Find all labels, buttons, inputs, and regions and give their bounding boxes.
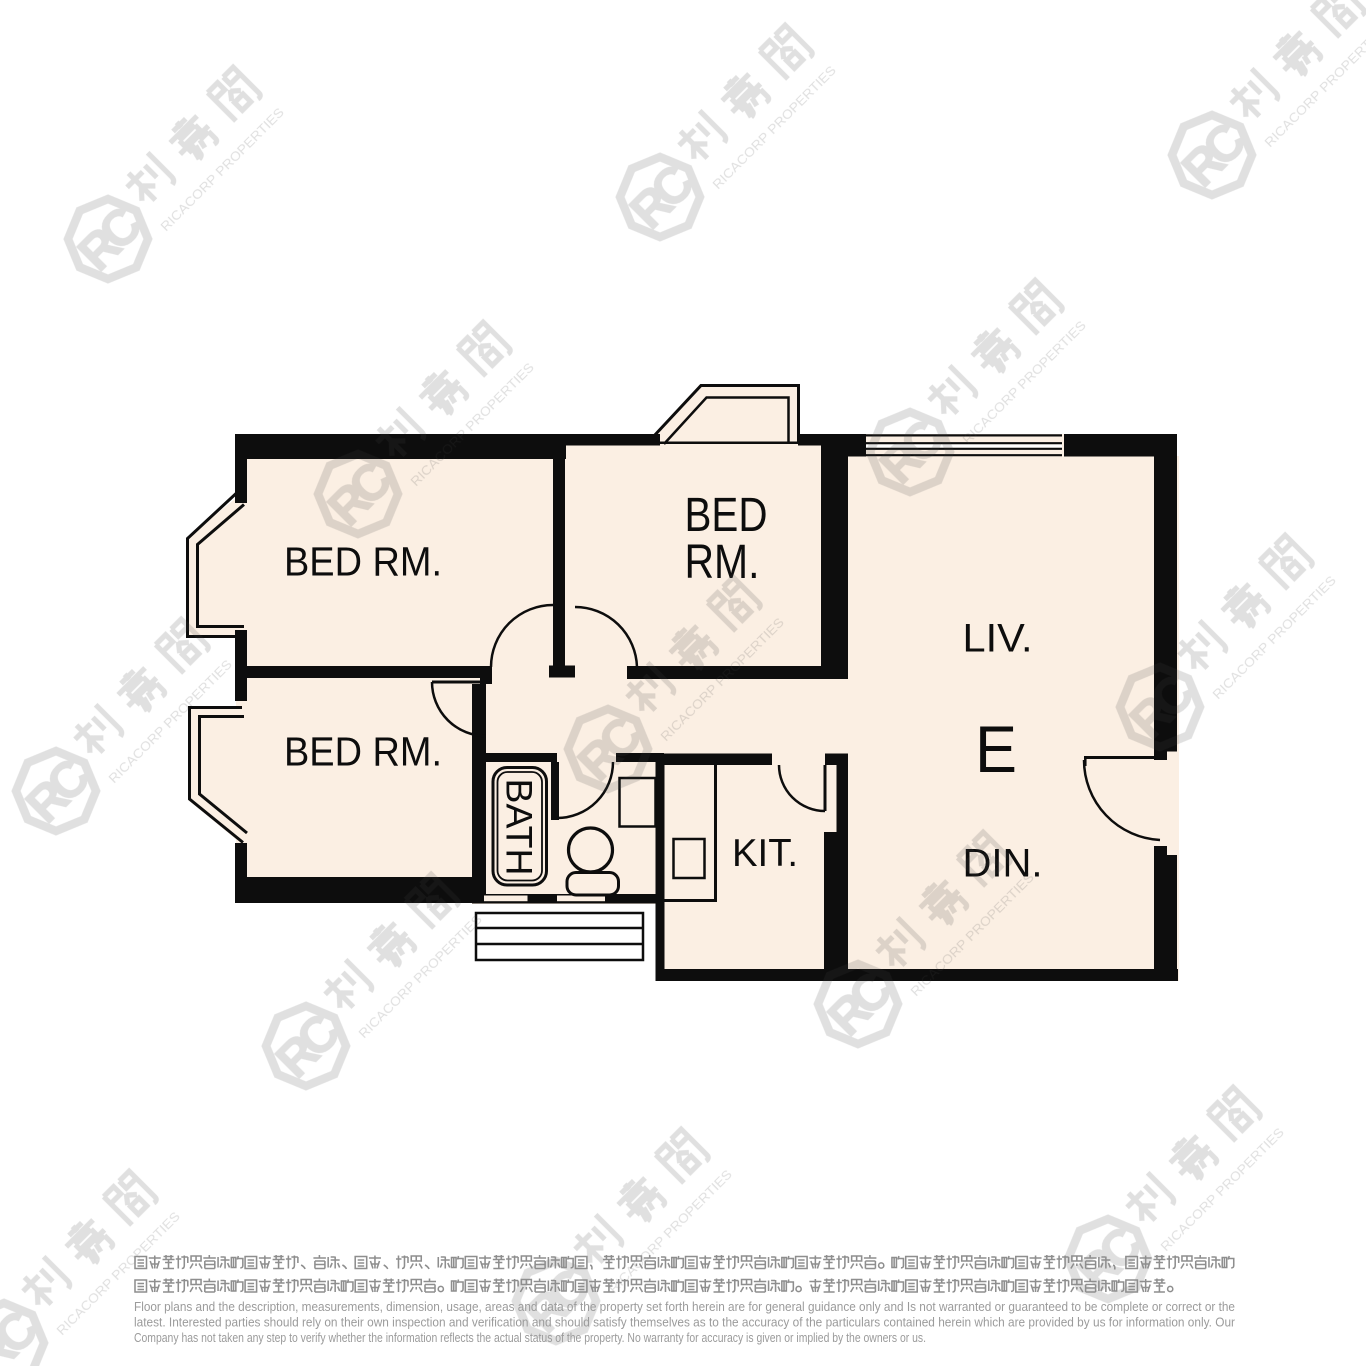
svg-text:latest. Interested parties sho: latest. Interested parties should rely o… (134, 1316, 1235, 1330)
svg-text:E: E (975, 712, 1017, 786)
svg-text:KIT.: KIT. (732, 832, 798, 875)
svg-text:Company has not taken any step: Company has not taken any step to verify… (134, 1331, 926, 1345)
svg-text:BED RM.: BED RM. (284, 729, 442, 775)
svg-text:BED: BED (685, 489, 768, 542)
svg-text:BED RM.: BED RM. (284, 539, 442, 585)
svg-text:BATH: BATH (499, 779, 540, 876)
svg-text:RM.: RM. (685, 536, 760, 589)
svg-text:Floor plans and the descriptio: Floor plans and the description, measure… (134, 1300, 1235, 1314)
svg-text:LIV.: LIV. (963, 617, 1033, 661)
